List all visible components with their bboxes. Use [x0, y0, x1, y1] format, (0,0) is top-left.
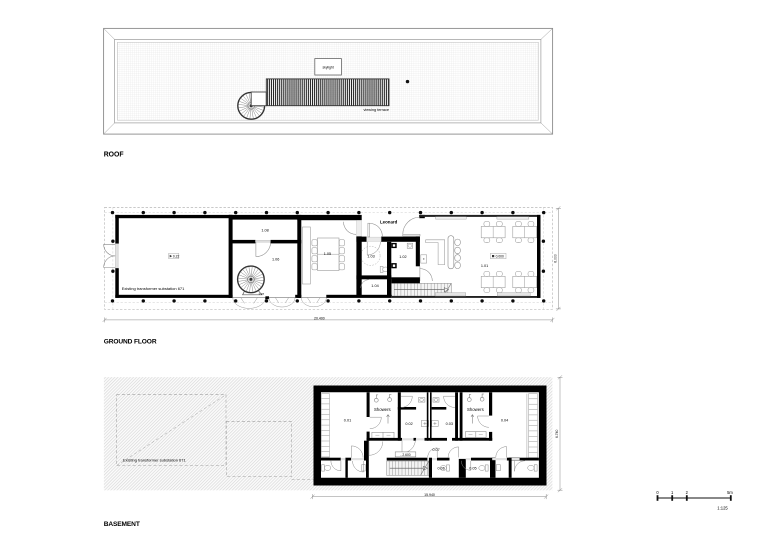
svg-text:1.06: 1.06 [272, 257, 279, 261]
svg-text:6.740: 6.740 [555, 429, 559, 438]
svg-text:5m: 5m [727, 490, 733, 495]
svg-text:skylight: skylight [322, 66, 333, 70]
svg-text:viewing terrace: viewing terrace [363, 108, 389, 112]
svg-text:GROUND FLOOR: GROUND FLOOR [104, 338, 157, 345]
svg-text:Showers: Showers [467, 407, 484, 412]
svg-text:1:125: 1:125 [717, 506, 728, 511]
svg-text:0.01: 0.01 [344, 419, 351, 423]
svg-text:Leonard: Leonard [380, 219, 398, 224]
svg-text:1.02: 1.02 [399, 255, 406, 259]
svg-text:0.22: 0.22 [173, 255, 180, 259]
svg-text:0.05: 0.05 [469, 466, 476, 470]
svg-text:0.06: 0.06 [438, 466, 445, 470]
svg-text:BASEMENT: BASEMENT [104, 521, 140, 528]
svg-text:0.03: 0.03 [446, 422, 453, 426]
svg-text:1.04: 1.04 [371, 284, 378, 288]
svg-text:0.02: 0.02 [405, 422, 412, 426]
svg-text:1.05: 1.05 [324, 252, 331, 256]
svg-text:Showers: Showers [374, 407, 391, 412]
svg-text:0.000: 0.000 [496, 255, 504, 259]
svg-text:1.08: 1.08 [261, 228, 268, 232]
svg-text:Existing transformer substatio: Existing transformer substation 671 [123, 457, 186, 462]
svg-text:1.01: 1.01 [481, 264, 488, 268]
svg-text:20.400: 20.400 [314, 316, 325, 320]
svg-text:1.03: 1.03 [367, 254, 374, 258]
svg-text:6.000: 6.000 [553, 254, 557, 263]
svg-text:ROOF: ROOF [104, 152, 124, 159]
svg-text:0.07: 0.07 [432, 448, 439, 452]
svg-text:0.04: 0.04 [501, 419, 508, 423]
svg-text:- 2.600: - 2.600 [400, 453, 410, 457]
svg-text:1.07: 1.07 [258, 292, 264, 296]
svg-text:15.940: 15.940 [424, 493, 435, 497]
svg-text:Existing transformer substatio: Existing transformer substation 671 [122, 286, 185, 291]
